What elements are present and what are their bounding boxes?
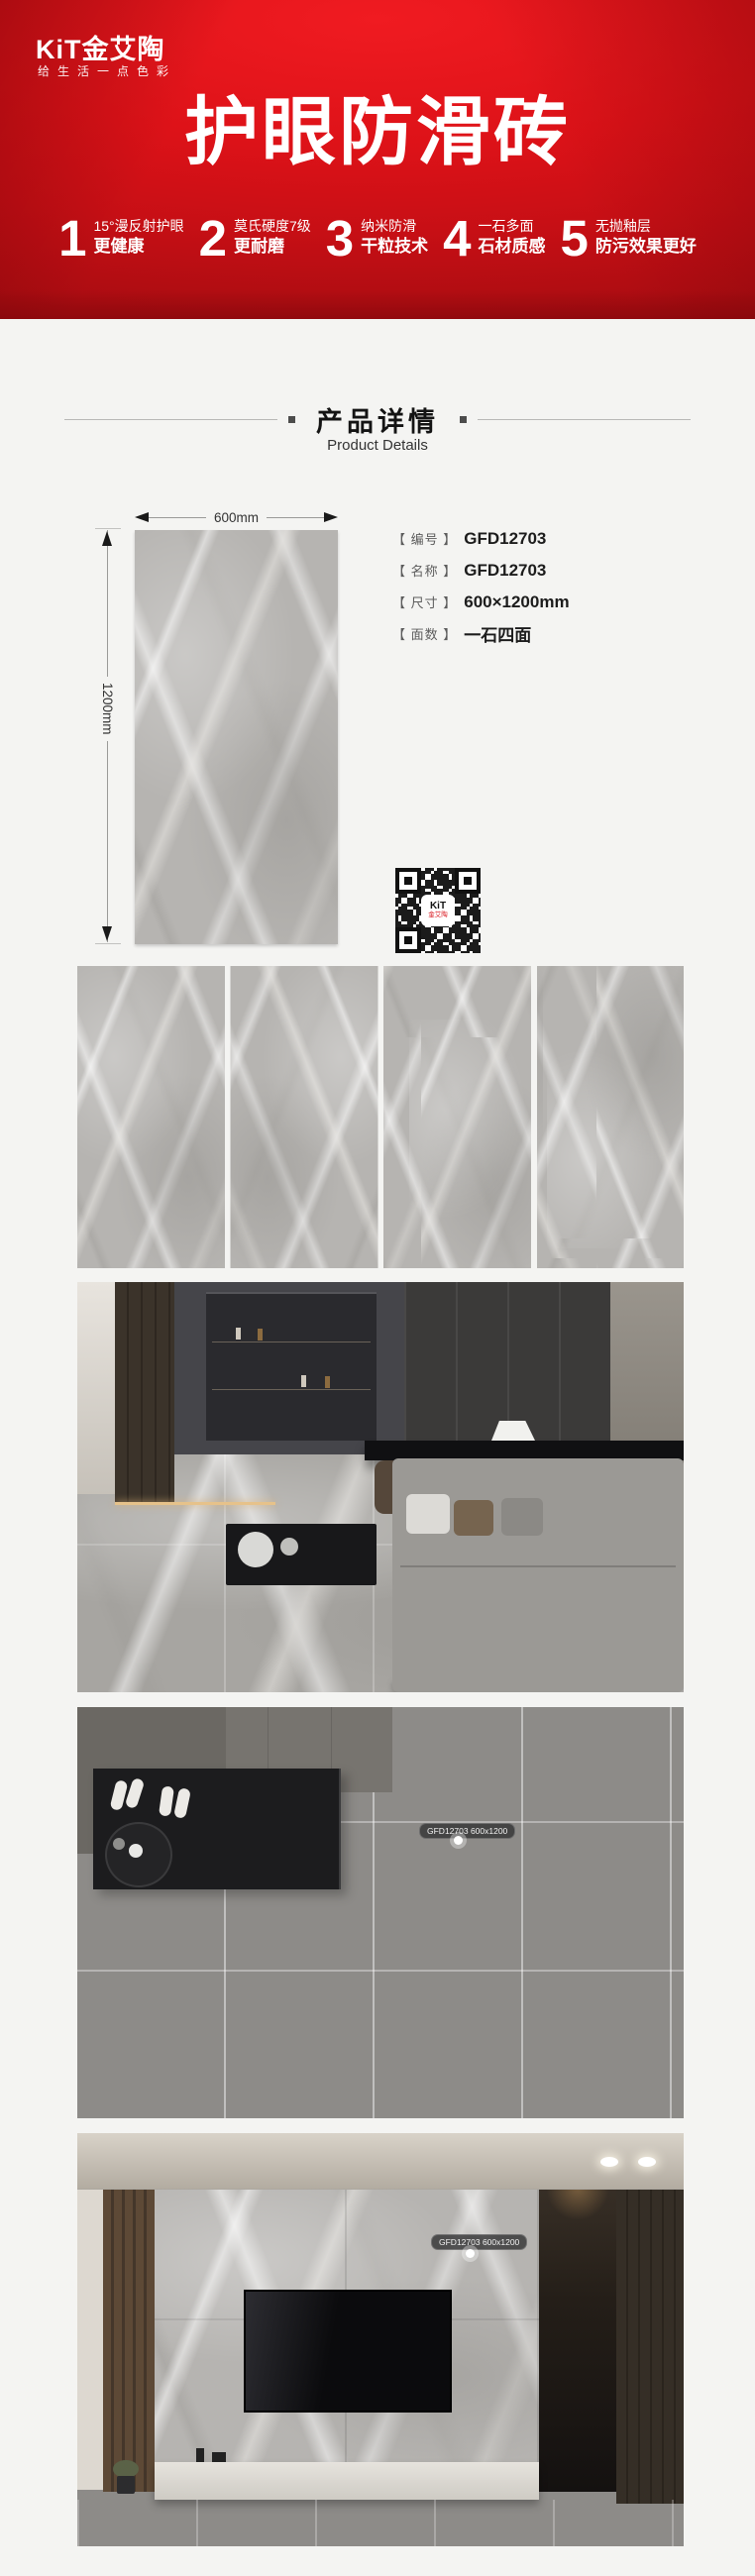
feature-line1: 无抛釉层 xyxy=(595,218,697,236)
spec-label: 【 编号 】 xyxy=(392,529,457,548)
section-subtitle: Product Details xyxy=(0,437,755,454)
teapot xyxy=(280,1538,298,1556)
brand-logo: KiT金艾陶 xyxy=(36,28,165,66)
hotspot-dot-icon xyxy=(454,1836,463,1845)
feature-item-1: 1 15°漫反射护眼 更健康 xyxy=(58,216,184,263)
dimension-tick-top xyxy=(95,528,121,529)
feature-number: 5 xyxy=(561,216,589,263)
height-dimension-label: 1200mm xyxy=(98,677,117,741)
shelf-line xyxy=(212,1389,371,1390)
spec-row-size: 【 尺寸 】 600×1200mm xyxy=(392,592,570,611)
product-tag-badge: GFD12703 600x1200 xyxy=(419,1823,515,1839)
tile-swatch-row xyxy=(77,966,684,1268)
divider-square-left xyxy=(288,416,295,423)
dimension-line xyxy=(267,517,324,518)
decor-vase xyxy=(196,2448,204,2462)
feature-line2: 更健康 xyxy=(93,236,183,257)
qr-code: KiT 金艾陶 xyxy=(395,868,481,953)
feature-number: 1 xyxy=(58,216,86,263)
feature-item-5: 5 无抛釉层 防污效果更好 xyxy=(561,216,697,263)
section-title: 产品详情 xyxy=(316,400,439,439)
arrow-left-icon xyxy=(135,512,149,522)
feature-line1: 一石多面 xyxy=(479,218,546,236)
sofa xyxy=(392,1458,684,1692)
scene-living-room xyxy=(77,1282,684,1692)
qr-logo-text: KiT xyxy=(430,902,446,912)
plant-pot xyxy=(117,2476,135,2494)
product-detail-page: KiT金艾陶 给生活一点色彩 护眼防滑砖 1 15°漫反射护眼 更健康 2 莫氏… xyxy=(0,0,755,2576)
feature-text: 莫氏硬度7级 更耐磨 xyxy=(234,216,311,257)
downlight-icon xyxy=(638,2157,656,2167)
sofa-seam xyxy=(400,1565,676,1567)
feature-text: 无抛釉层 防污效果更好 xyxy=(595,216,697,257)
wall-panel xyxy=(77,1282,115,1494)
spec-row-name: 【 名称 】 GFD12703 xyxy=(392,561,570,580)
scene-floor-view: GFD12703 600x1200 xyxy=(77,1707,684,2118)
feature-line1: 莫氏硬度7级 xyxy=(234,218,311,236)
ceiling xyxy=(77,2133,684,2190)
cushion-brown xyxy=(454,1500,493,1536)
tv xyxy=(244,2290,452,2413)
dimension-tick-bottom xyxy=(95,943,121,944)
arrow-down-icon xyxy=(102,926,112,941)
spec-value: GFD12703 xyxy=(464,561,546,581)
wood-cabinet xyxy=(115,1282,174,1502)
height-dimension: 1200mm xyxy=(95,528,121,944)
width-dimension-label: 600mm xyxy=(206,510,267,525)
desk xyxy=(365,1441,684,1460)
feature-line2: 干粒技术 xyxy=(361,236,428,257)
spec-label: 【 尺寸 】 xyxy=(392,592,457,611)
downlight-icon xyxy=(600,2157,618,2167)
qr-logo-subtext: 金艾陶 xyxy=(428,912,448,919)
hotspot-dot-icon xyxy=(466,2249,475,2258)
scene-tv-wall: GFD12703 600x1200 xyxy=(77,2133,684,2546)
scene-floor xyxy=(77,2500,684,2546)
decor-bottle xyxy=(301,1375,306,1387)
width-dimension: 600mm xyxy=(135,509,338,525)
decor-bottle xyxy=(258,1329,263,1341)
tile-swatch-2 xyxy=(231,966,378,1268)
divider-line-left xyxy=(64,419,277,420)
feature-text: 纳米防滑 干粒技术 xyxy=(361,216,428,257)
spec-list: 【 编号 】 GFD12703 【 名称 】 GFD12703 【 尺寸 】 6… xyxy=(392,529,570,643)
spec-label: 【 名称 】 xyxy=(392,561,457,580)
arrow-up-icon xyxy=(102,531,112,546)
tile-swatch-1 xyxy=(77,966,225,1268)
feature-number: 3 xyxy=(326,216,354,263)
spec-value: GFD12703 xyxy=(464,529,546,549)
hero-banner: KiT金艾陶 给生活一点色彩 护眼防滑砖 1 15°漫反射护眼 更健康 2 莫氏… xyxy=(0,0,755,319)
cup xyxy=(129,1844,143,1858)
feature-item-3: 3 纳米防滑 干粒技术 xyxy=(326,216,428,263)
product-tag-badge: GFD12703 600x1200 xyxy=(431,2234,527,2250)
brand-slogan: 给生活一点色彩 xyxy=(38,62,176,79)
display-shelf xyxy=(206,1292,377,1441)
feature-line1: 15°漫反射护眼 xyxy=(93,218,183,236)
spec-value: 一石四面 xyxy=(464,621,531,646)
divider-line-right xyxy=(478,419,691,420)
decor-bottle xyxy=(236,1328,241,1340)
cushion-gray xyxy=(501,1498,543,1536)
decor-bottle xyxy=(325,1376,330,1388)
banner-title: 护眼防滑砖 xyxy=(0,91,755,173)
led-strip xyxy=(115,1502,275,1505)
feature-line1: 纳米防滑 xyxy=(361,218,428,236)
feature-list: 1 15°漫反射护眼 更健康 2 莫氏硬度7级 更耐磨 3 纳米防滑 干粒技术 xyxy=(0,216,755,263)
divider-square-right xyxy=(460,416,467,423)
feature-item-2: 2 莫氏硬度7级 更耐磨 xyxy=(199,216,311,263)
feature-line2: 更耐磨 xyxy=(234,236,311,257)
qr-finder-icon xyxy=(395,868,421,894)
feature-text: 一石多面 石材质感 xyxy=(479,216,546,257)
product-tile-image xyxy=(135,530,338,944)
spec-row-faces: 【 面数 】 一石四面 xyxy=(392,624,570,643)
feature-item-4: 4 一石多面 石材质感 xyxy=(443,216,545,263)
qr-finder-icon xyxy=(455,868,481,894)
spec-value: 600×1200mm xyxy=(464,592,569,612)
tile-swatch-4 xyxy=(537,966,685,1268)
feature-line2: 石材质感 xyxy=(479,236,546,257)
bottom-margin xyxy=(0,2546,755,2576)
qr-finder-icon xyxy=(395,927,421,953)
cup xyxy=(113,1838,125,1850)
wood-slat-panel xyxy=(103,2173,155,2492)
spec-row-code: 【 编号 】 GFD12703 xyxy=(392,529,570,548)
feature-text: 15°漫反射护眼 更健康 xyxy=(93,216,183,257)
shelf-line xyxy=(212,1342,371,1342)
spec-label: 【 面数 】 xyxy=(392,624,457,643)
tv-cabinet xyxy=(155,2462,539,2500)
tea-tray xyxy=(238,1532,273,1567)
section-header: 产品详情 xyxy=(64,400,691,439)
tile-swatch-3 xyxy=(383,966,531,1268)
feature-line2: 防污效果更好 xyxy=(595,236,697,257)
feature-number: 2 xyxy=(199,216,227,263)
qr-center-logo: KiT 金艾陶 xyxy=(421,895,455,926)
dimension-line xyxy=(149,517,206,518)
feature-number: 4 xyxy=(443,216,471,263)
decor-books xyxy=(212,2452,226,2462)
cushion-white xyxy=(406,1494,450,1534)
arrow-right-icon xyxy=(324,512,338,522)
